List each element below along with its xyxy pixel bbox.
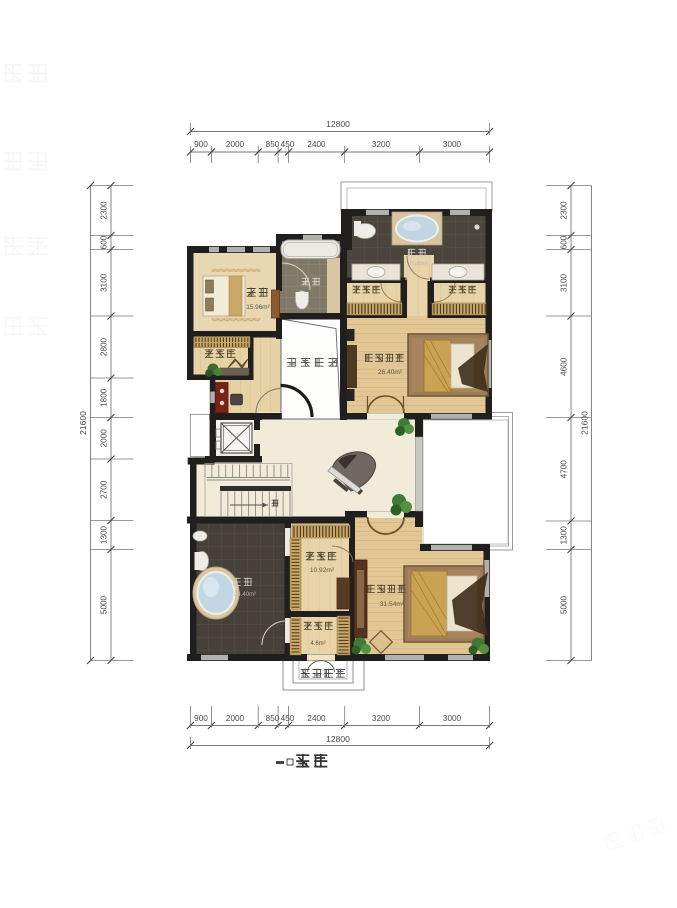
svg-text:2400: 2400 [307,714,326,723]
svg-text:4.6m²: 4.6m² [310,641,325,647]
svg-text:12800: 12800 [326,119,350,129]
svg-text:4700: 4700 [560,460,569,479]
svg-text:2300: 2300 [560,201,569,220]
svg-text:3000: 3000 [443,140,462,149]
svg-text:3200: 3200 [372,140,391,149]
svg-text:2800: 2800 [100,337,109,356]
svg-text:4600: 4600 [560,357,569,376]
svg-text:2700: 2700 [100,480,109,499]
svg-text:850: 850 [266,140,280,149]
svg-text:900: 900 [194,714,208,723]
svg-text:450: 450 [281,140,295,149]
svg-text:31.54m²: 31.54m² [380,601,405,608]
svg-text:3000: 3000 [443,714,462,723]
svg-text:1300: 1300 [100,525,109,544]
svg-text:2400: 2400 [307,140,326,149]
svg-text:450: 450 [281,714,295,723]
svg-text:1300: 1300 [560,526,569,545]
svg-text:900: 900 [194,140,208,149]
svg-text:21600: 21600 [580,411,590,435]
svg-text:2000: 2000 [100,429,109,448]
svg-text:10.92m²: 10.92m² [310,567,335,574]
svg-text:2000: 2000 [226,140,245,149]
svg-text:2300: 2300 [100,201,109,220]
svg-text:12800: 12800 [326,734,350,744]
svg-text:5000: 5000 [560,595,569,614]
svg-text:3200: 3200 [372,714,391,723]
svg-text:21600: 21600 [78,411,88,435]
svg-text:600: 600 [100,235,109,249]
svg-text:1800: 1800 [100,388,109,407]
svg-text:26.40m²: 26.40m² [378,369,403,376]
svg-text:15.96m²: 15.96m² [246,304,269,311]
svg-text:5000: 5000 [100,595,109,614]
svg-text:24.40m²: 24.40m² [234,592,256,598]
svg-text:3100: 3100 [560,273,569,292]
svg-text:600: 600 [560,235,569,249]
svg-text:3100: 3100 [100,273,109,292]
svg-text:2000: 2000 [226,714,245,723]
svg-text:850: 850 [266,714,280,723]
